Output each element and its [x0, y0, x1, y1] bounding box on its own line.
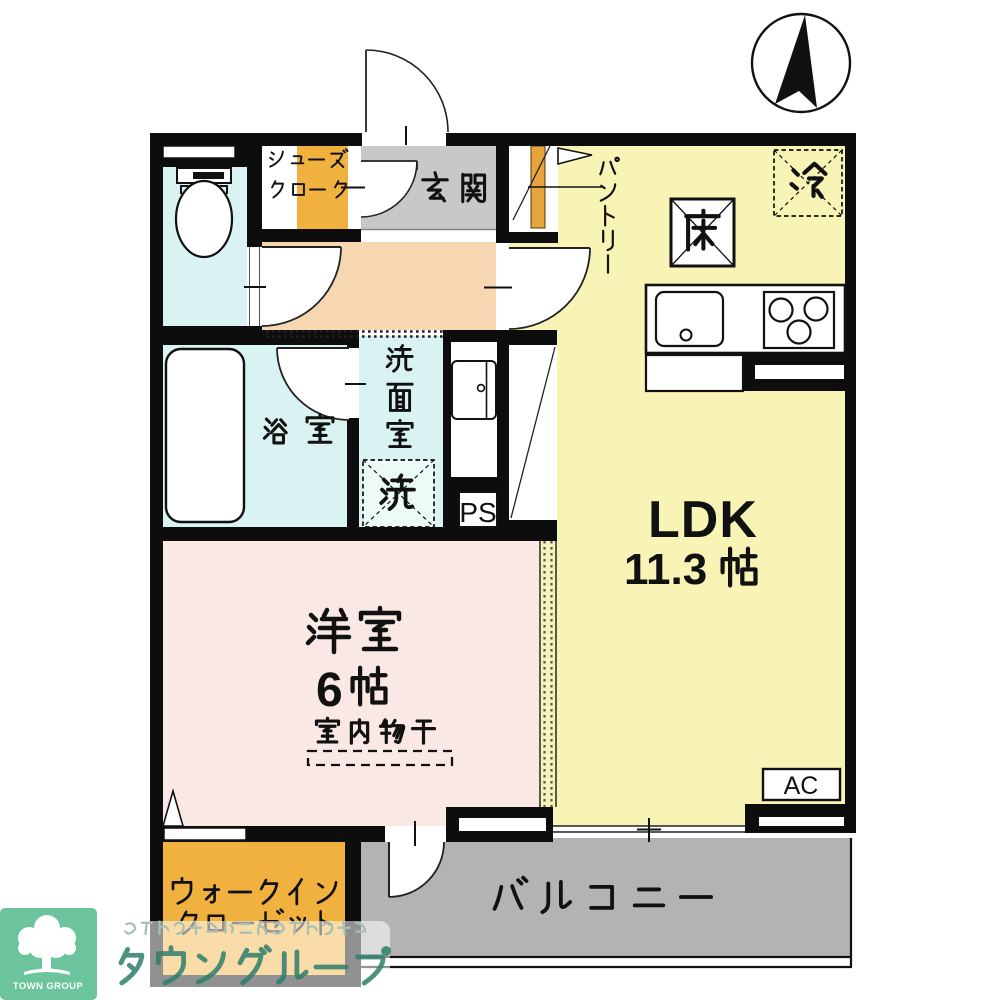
- svg-text:11.3: 11.3: [624, 545, 707, 594]
- svg-text:6: 6: [316, 664, 343, 717]
- svg-text:AC: AC: [784, 772, 819, 800]
- svg-text:LDK: LDK: [648, 491, 758, 549]
- svg-text:PS: PS: [459, 497, 496, 528]
- svg-text:TOWN GROUP: TOWN GROUP: [13, 981, 84, 992]
